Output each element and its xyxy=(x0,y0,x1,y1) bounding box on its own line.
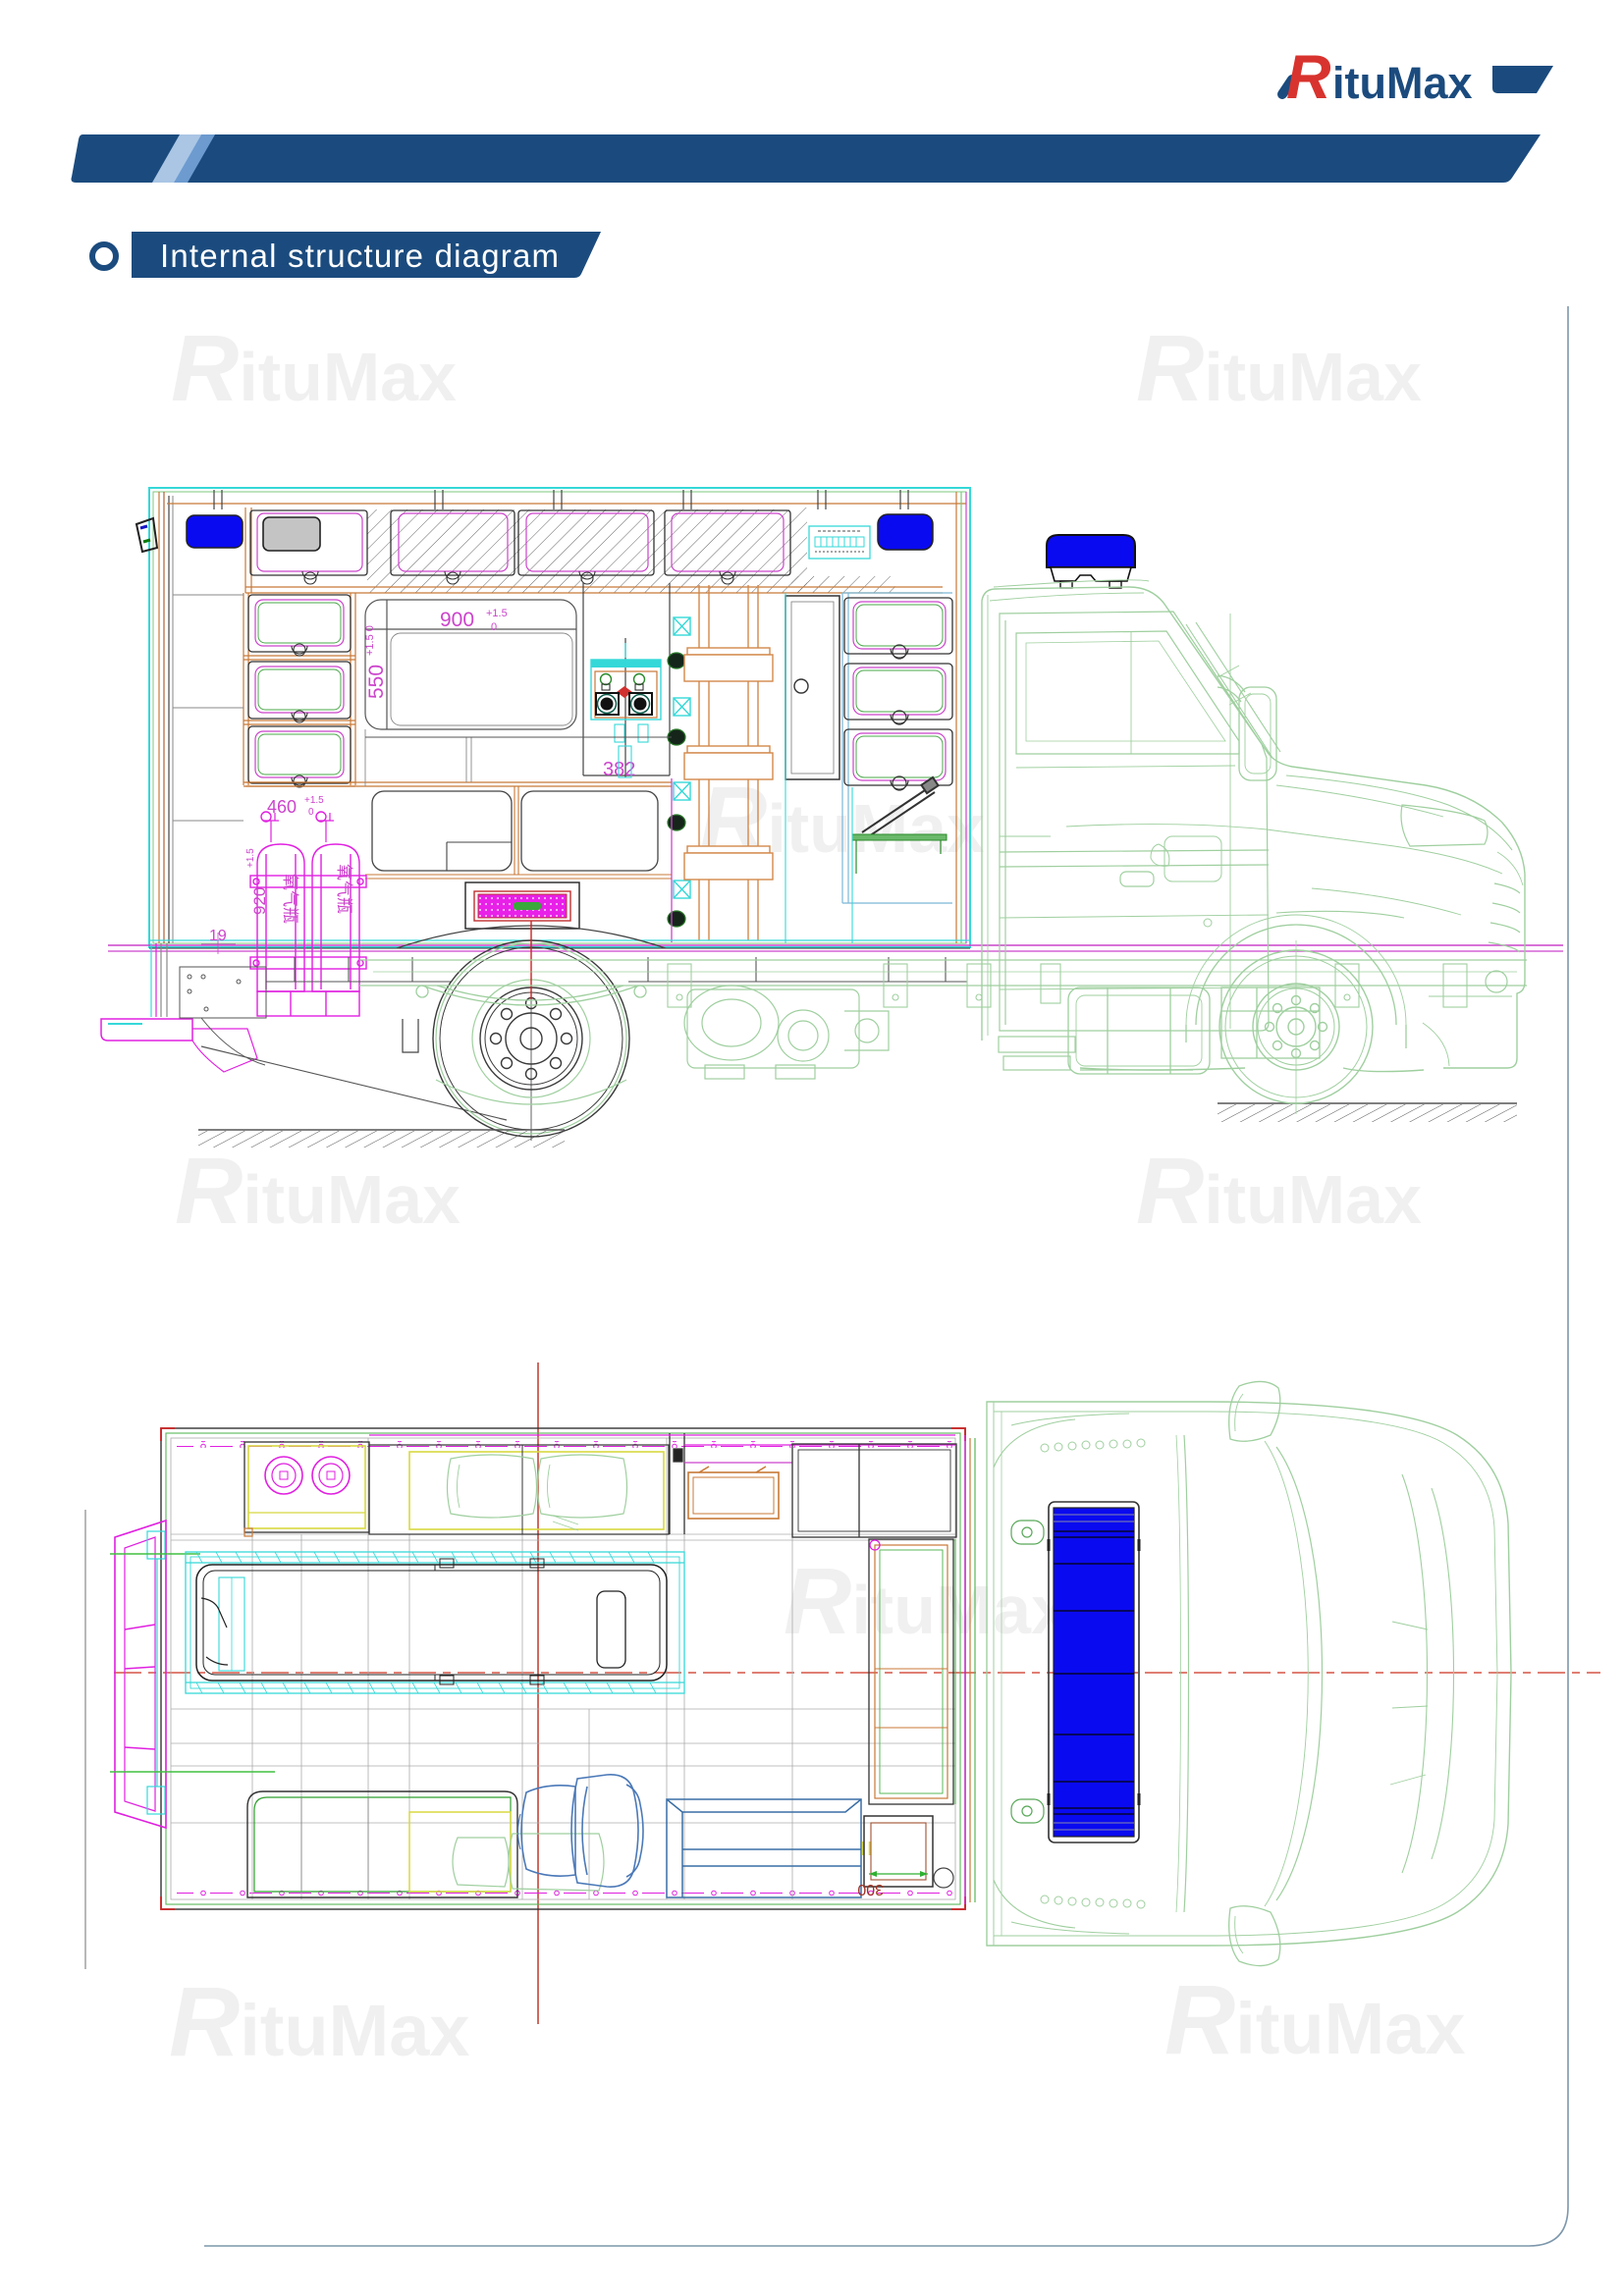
svg-text:RituMax: RituMax xyxy=(175,1139,460,1244)
svg-text:RituMax: RituMax xyxy=(1136,1139,1422,1244)
svg-text:氧气瓶: 氧气瓶 xyxy=(281,874,299,924)
svg-text:RituMax: RituMax xyxy=(1136,316,1422,421)
svg-text:+1.5: +1.5 xyxy=(304,795,324,806)
svg-text:460: 460 xyxy=(267,797,297,817)
svg-text:ituMax: ituMax xyxy=(1332,58,1473,108)
svg-text:RituMax: RituMax xyxy=(171,316,457,421)
svg-text:550: 550 xyxy=(365,665,388,699)
svg-text:300: 300 xyxy=(857,1881,884,1897)
svg-text:900: 900 xyxy=(440,609,474,631)
svg-text:+1.5: +1.5 xyxy=(245,848,256,868)
svg-text:RituMax: RituMax xyxy=(784,1549,1069,1654)
svg-text:920: 920 xyxy=(250,887,269,915)
svg-text:氧气瓶: 氧气瓶 xyxy=(335,864,353,914)
svg-text:+1.5 0: +1.5 0 xyxy=(364,625,376,656)
svg-text:Internal structure diagram: Internal structure diagram xyxy=(160,238,560,274)
svg-text:RituMax: RituMax xyxy=(169,1967,470,2077)
svg-text:R: R xyxy=(1286,43,1331,112)
svg-text:RituMax: RituMax xyxy=(1164,1965,1466,2075)
svg-text:0: 0 xyxy=(491,621,497,633)
svg-text:+1.5: +1.5 xyxy=(486,608,508,619)
svg-text:0: 0 xyxy=(308,807,314,818)
